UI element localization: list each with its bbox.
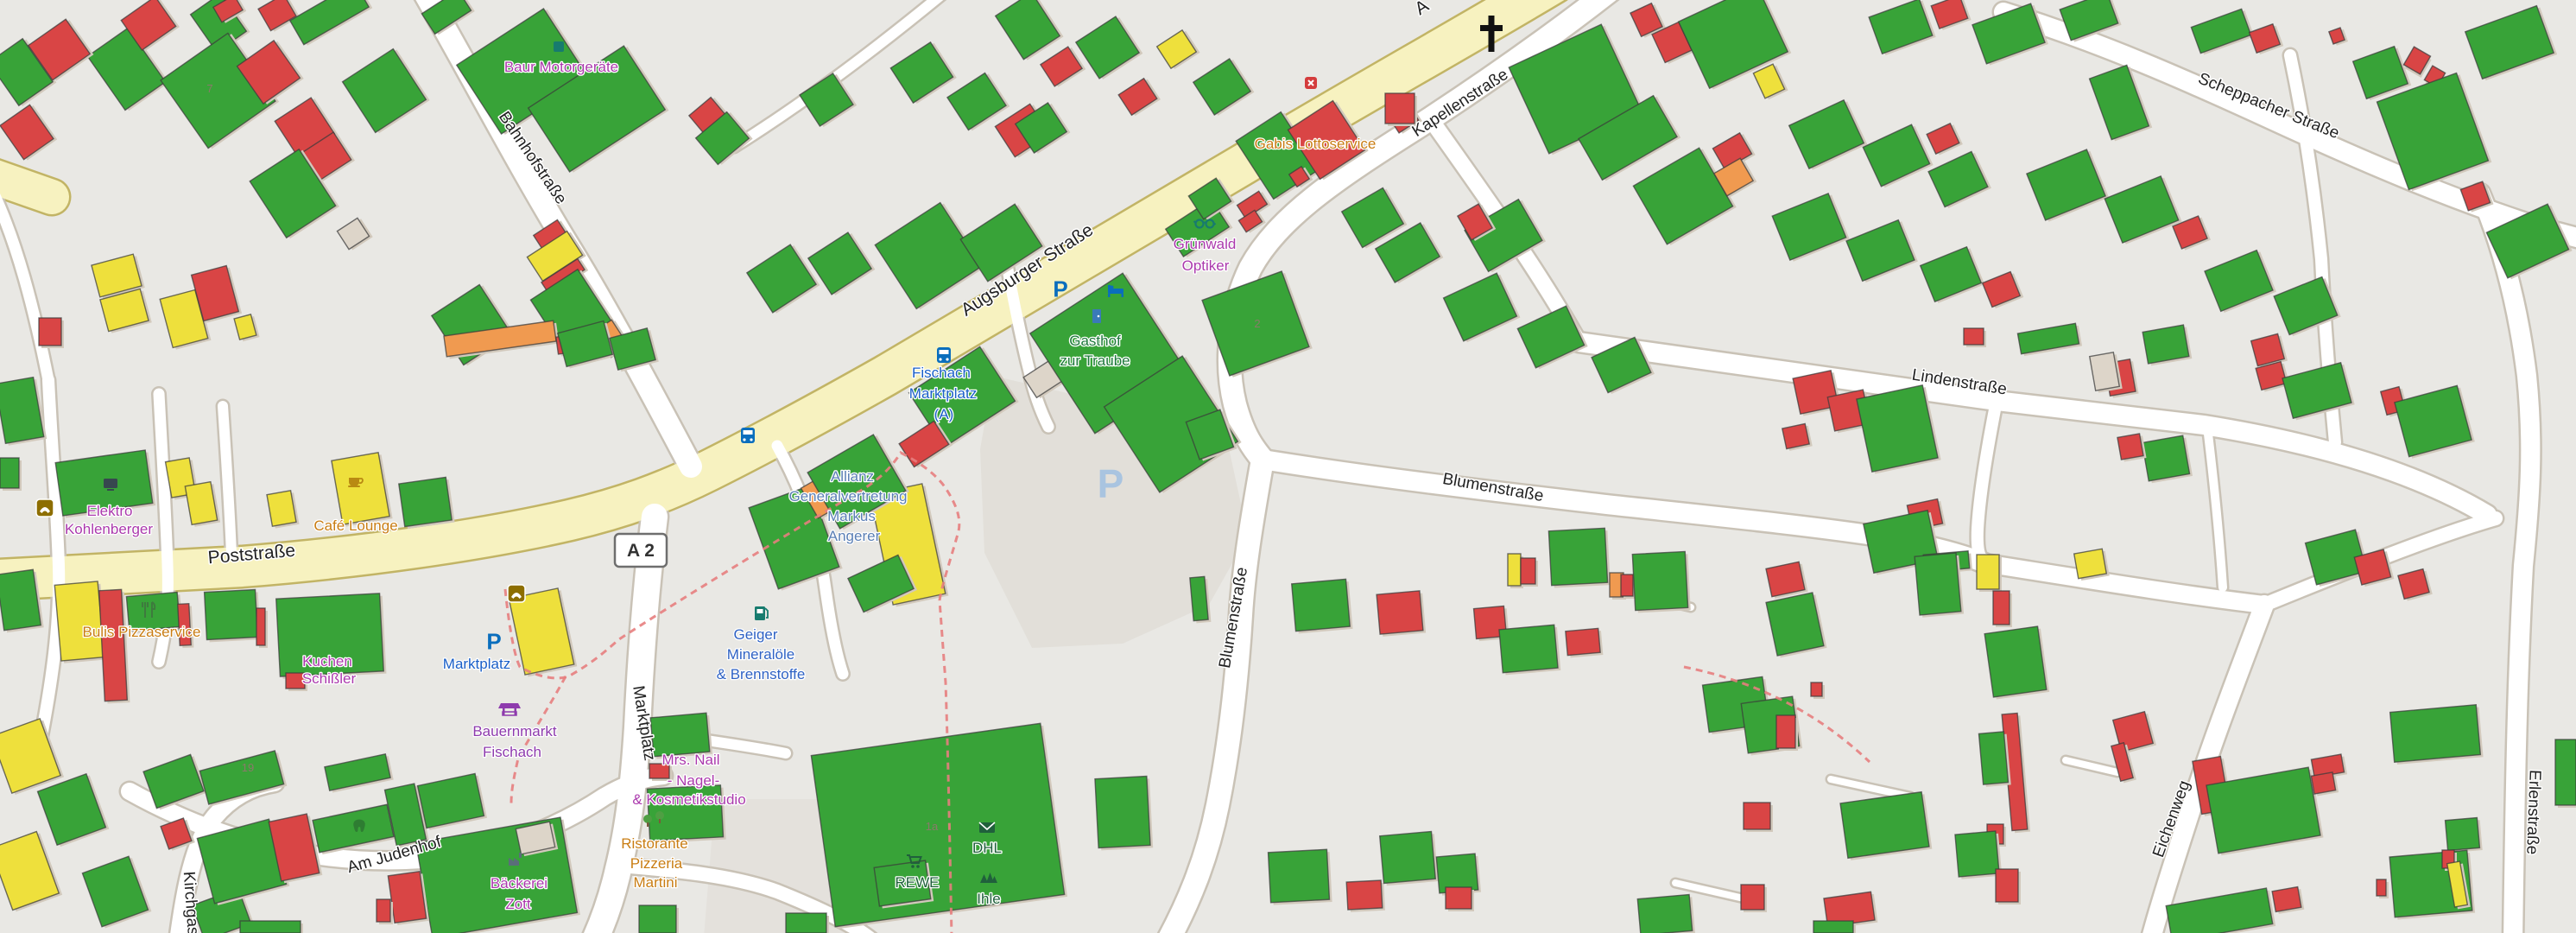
building[interactable] xyxy=(1292,579,1353,634)
shop-icon xyxy=(554,41,564,52)
bus-icon xyxy=(741,428,755,443)
poi-label-line: Gabis Lottoservice xyxy=(1255,136,1377,152)
poi-label-line: Kuchen xyxy=(302,653,352,670)
poi-label-line: Mrs. Nail xyxy=(661,752,719,768)
poi-label-line: REWE xyxy=(896,874,940,891)
poi-label-line: Allianz xyxy=(831,468,874,485)
building[interactable] xyxy=(1499,625,1560,676)
building[interactable] xyxy=(1521,558,1538,587)
building[interactable] xyxy=(2390,704,2484,765)
building[interactable] xyxy=(256,608,268,648)
building[interactable] xyxy=(1996,869,2021,904)
building[interactable] xyxy=(240,921,303,933)
building[interactable] xyxy=(1978,732,2010,788)
building[interactable] xyxy=(1385,93,1417,126)
building[interactable] xyxy=(1813,921,1856,933)
poi-label-line: - Nagel- xyxy=(668,772,719,789)
svg-text:P: P xyxy=(486,628,501,654)
building[interactable] xyxy=(2074,549,2110,581)
building[interactable] xyxy=(1637,894,1695,933)
building[interactable] xyxy=(399,477,455,530)
poi-label-line: Markus xyxy=(827,508,876,524)
poi-label-line: DHL xyxy=(972,840,1002,856)
building[interactable] xyxy=(2446,817,2483,853)
poi-label-line: Café Lounge xyxy=(313,517,397,534)
poi-label-line: Pizzeria xyxy=(630,855,683,872)
poi-label-line: Ristorante xyxy=(621,835,687,852)
poi-label-line: Ihle xyxy=(977,891,1000,907)
building[interactable] xyxy=(2142,435,2193,484)
building[interactable] xyxy=(1964,328,1986,347)
poi-label-line: Marktplatz xyxy=(909,385,977,402)
poi-label-line: Angerer xyxy=(828,528,881,544)
poi-label-line: & Kosmetikstudio xyxy=(632,791,745,808)
poi-label-line: Generalvertretung xyxy=(788,488,907,505)
bus-icon xyxy=(937,347,951,363)
building[interactable] xyxy=(2311,771,2339,796)
map-canvas[interactable]: PPBahnhofstraßeAugsburger StraßePoststra… xyxy=(0,0,2576,933)
building[interactable] xyxy=(811,723,1067,930)
poi-label-line: Schißler xyxy=(302,670,357,687)
building[interactable] xyxy=(1977,555,2002,592)
building[interactable] xyxy=(388,871,429,925)
poi-label-line: Zott xyxy=(505,896,531,912)
building[interactable] xyxy=(1269,849,1332,905)
building[interactable] xyxy=(1548,528,1610,587)
parking-lot-icon: P xyxy=(1098,461,1124,506)
building[interactable] xyxy=(1744,803,1773,832)
building[interactable] xyxy=(1993,591,2012,627)
poi-label-line: Bäckerei xyxy=(491,875,547,892)
phone-icon xyxy=(508,585,525,602)
building[interactable] xyxy=(2555,739,2576,808)
poi-label-line: Elektro xyxy=(87,503,133,519)
street-label: Erlenstraße xyxy=(2522,770,2543,855)
building[interactable] xyxy=(39,318,64,348)
building[interactable] xyxy=(639,905,679,933)
poi-label-line: Grünwald xyxy=(1174,236,1237,252)
building[interactable] xyxy=(2272,886,2304,914)
building[interactable] xyxy=(1346,880,1385,912)
building[interactable] xyxy=(1955,831,2002,879)
poi-label-line: Fischach xyxy=(912,365,971,381)
house-number: 7 xyxy=(206,82,212,95)
route-shield-a2: A 2 xyxy=(615,534,667,567)
poi-label-line: Bauernmarkt xyxy=(472,723,557,739)
road-main-road-stub-west[interactable] xyxy=(0,173,52,197)
building[interactable] xyxy=(1741,885,1767,912)
building[interactable] xyxy=(1566,628,1604,657)
house-number: 2 xyxy=(1254,317,1260,330)
building[interactable] xyxy=(1380,831,1439,885)
svg-text:P: P xyxy=(1053,276,1067,301)
poi-label-line: Bulis Pizzaservice xyxy=(83,624,201,640)
svg-text:P: P xyxy=(1098,461,1124,506)
poi-label-line: & Brennstoffe xyxy=(717,666,806,682)
building[interactable] xyxy=(1840,791,1932,860)
house-number: 19 xyxy=(242,761,254,774)
svg-text:A 2: A 2 xyxy=(627,541,655,561)
parking-icon: P xyxy=(1053,276,1067,301)
mail-icon xyxy=(979,822,995,833)
building[interactable] xyxy=(0,458,22,491)
phone-icon xyxy=(36,499,54,517)
poi-label-line: Mineralöle xyxy=(727,646,794,663)
building[interactable] xyxy=(2117,433,2147,462)
building[interactable] xyxy=(1377,591,1426,637)
building[interactable] xyxy=(1811,682,1825,699)
building[interactable] xyxy=(1632,551,1690,612)
poi-label-line: (A) xyxy=(934,406,954,422)
poi-label-line: Optiker xyxy=(1182,257,1230,274)
building[interactable] xyxy=(1095,776,1153,850)
poi-label-line: Gasthof xyxy=(1069,333,1121,349)
poi-label-line: Fischach xyxy=(483,744,541,760)
building[interactable] xyxy=(2377,879,2389,898)
building[interactable] xyxy=(1776,715,1798,751)
house-number: 1a xyxy=(926,820,939,833)
poi-label-line: Marktplatz xyxy=(443,656,510,672)
parking-icon: P xyxy=(486,628,501,654)
lotto-icon xyxy=(1305,77,1317,89)
poi-label-line: Baur Motorgeräte xyxy=(504,59,618,75)
building[interactable] xyxy=(1984,626,2049,700)
map-container: PPBahnhofstraßeAugsburger StraßePoststra… xyxy=(0,0,2576,933)
building[interactable] xyxy=(377,899,393,924)
poi-label-line: zur Traube xyxy=(1060,352,1130,369)
poi-label-line: Martini xyxy=(633,874,677,891)
building[interactable] xyxy=(205,589,261,642)
building[interactable] xyxy=(1446,887,1474,911)
building[interactable] xyxy=(786,913,829,933)
building[interactable] xyxy=(1915,553,1964,618)
door-icon xyxy=(1092,309,1101,323)
poi-label-line: Kohlenberger xyxy=(65,521,153,537)
poi-label-line: Geiger xyxy=(733,626,777,643)
poi-kuchen-schissler[interactable]: KuchenSchißler xyxy=(302,653,357,687)
